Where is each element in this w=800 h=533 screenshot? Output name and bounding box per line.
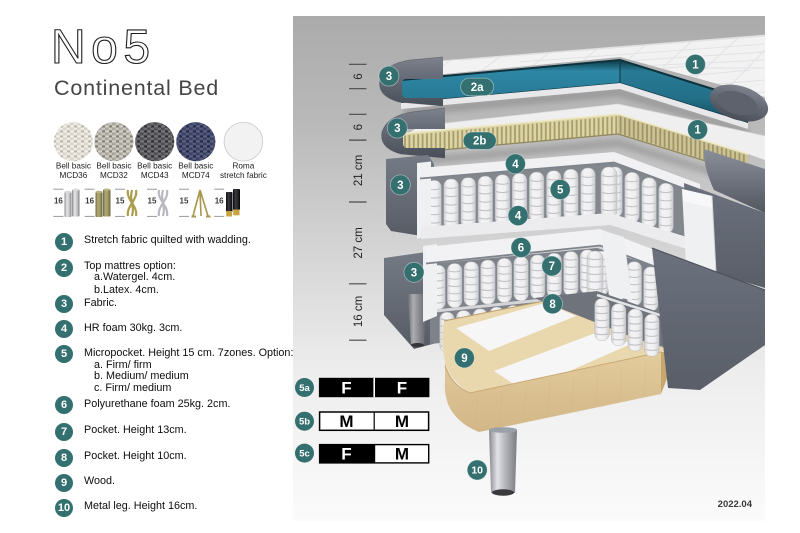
svg-text:3: 3 [394, 123, 400, 135]
svg-text:2b: 2b [473, 136, 486, 148]
svg-text:3: 3 [397, 180, 403, 192]
svg-text:F: F [397, 379, 407, 398]
svg-text:1: 1 [692, 59, 699, 71]
svg-text:F: F [341, 379, 351, 398]
svg-text:10: 10 [471, 465, 483, 477]
svg-text:7: 7 [549, 261, 555, 273]
svg-text:21 cm: 21 cm [353, 155, 365, 186]
svg-text:3: 3 [411, 267, 417, 279]
svg-text:6: 6 [353, 124, 365, 130]
svg-text:9: 9 [461, 353, 467, 365]
svg-text:27 cm: 27 cm [353, 227, 365, 258]
svg-text:3: 3 [386, 71, 392, 83]
svg-text:8: 8 [549, 299, 556, 311]
svg-text:F: F [341, 445, 351, 464]
svg-text:2a: 2a [471, 82, 484, 94]
svg-text:5c: 5c [299, 449, 310, 460]
svg-text:4: 4 [515, 211, 522, 223]
svg-text:5b: 5b [299, 417, 310, 428]
svg-text:M: M [395, 412, 409, 431]
svg-text:16 cm: 16 cm [353, 296, 365, 327]
svg-text:6: 6 [353, 73, 365, 79]
svg-text:6: 6 [518, 243, 524, 255]
svg-text:M: M [395, 445, 409, 464]
svg-text:4: 4 [512, 159, 519, 171]
svg-text:1: 1 [694, 125, 701, 137]
svg-text:5a: 5a [299, 383, 310, 394]
svg-text:2022.04: 2022.04 [718, 499, 753, 510]
svg-text:M: M [339, 412, 353, 431]
svg-text:5: 5 [557, 185, 564, 197]
